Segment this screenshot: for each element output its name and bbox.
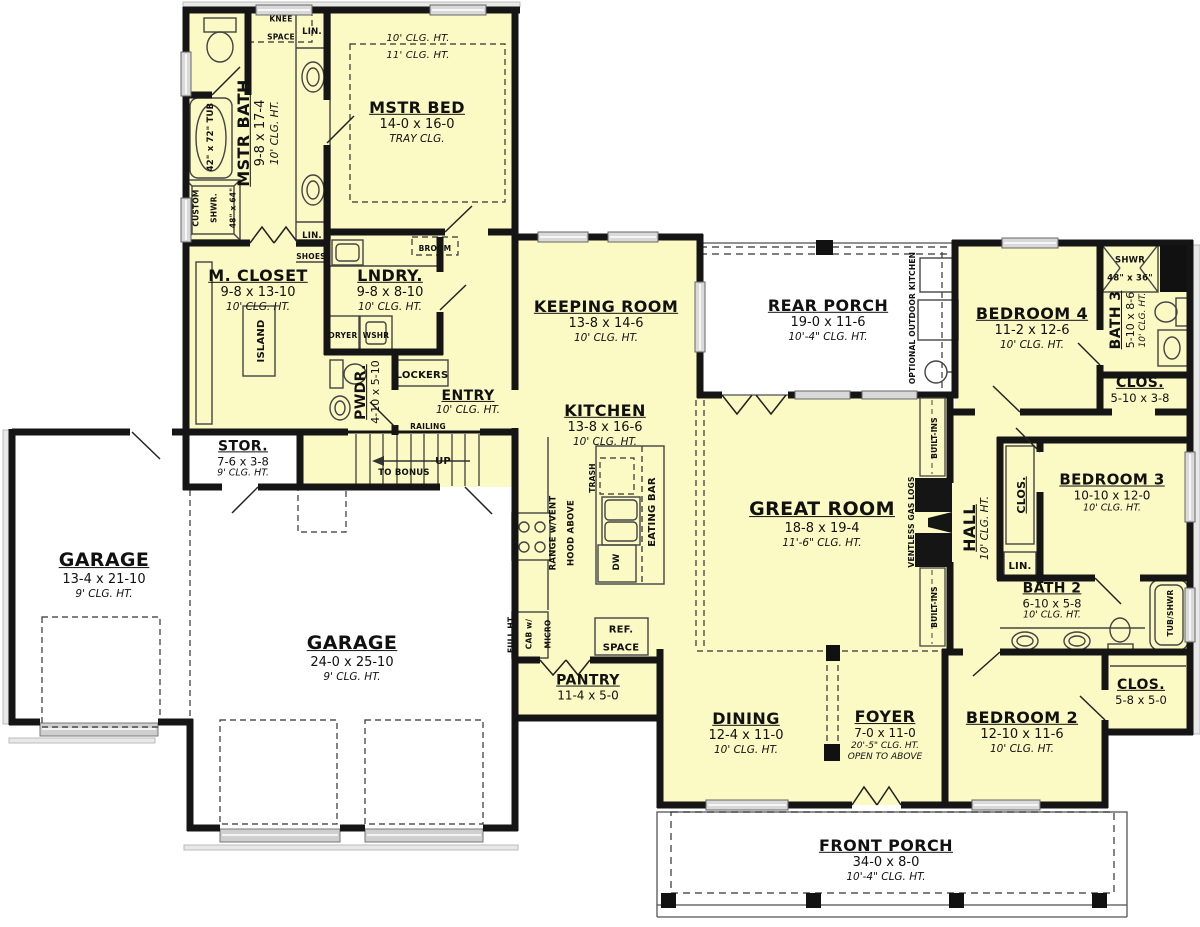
room-label-front-porch: FRONT PORCH 34-0 x 8-0 10'-4" CLG. HT. — [819, 837, 953, 883]
built-ins-label-top: BUILT-INS — [923, 417, 941, 459]
room-label-m-closet: M. CLOSET 9-8 x 13-10 10' CLG. HT. — [208, 267, 308, 313]
room-label-clos3: CLOS. 5-10 x 3-8 — [1111, 375, 1170, 405]
room-label-pwdr: PWDR. 4-10 x 5-10 — [353, 360, 383, 423]
lockers-label: LOCKERS — [396, 364, 449, 382]
washer-label: WSHR — [363, 324, 390, 342]
built-ins-label-bottom: BUILT-INS — [923, 586, 941, 628]
room-dim: 14-0 x 16-0 — [369, 118, 465, 133]
range-label: RANGE w/VENTHOOD ABOVE — [542, 496, 579, 571]
room-label-clos2: CLOS. 5-8 x 5-0 — [1115, 677, 1167, 707]
room-label-keeping: KEEPING ROOM 13-8 x 14-6 10' CLG. HT. — [534, 298, 678, 344]
room-label-bath2: BATH 2 6-10 x 5-8 10' CLG. HT. — [1023, 580, 1082, 621]
eating-bar-label: EATING BAR — [641, 477, 659, 546]
garage-door-lines — [42, 729, 481, 835]
optional-outdoor-kitchen-label: OPTIONAL OUTDOOR KITCHEN — [901, 252, 919, 384]
linen-label-bath-top: LIN. — [302, 20, 322, 38]
room-label-foyer: FOYER 7-0 x 11-0 20'-5" CLG. HT. OPEN TO… — [848, 708, 923, 762]
island-label: ISLAND — [250, 320, 268, 363]
room-label-lndry: LNDRY. 9-8 x 8-10 10' CLG. HT. — [357, 267, 424, 313]
dryer-label: DRYER — [329, 324, 358, 342]
room-label-bath3: BATH 3 5-10 x 8-6 10' CLG. HT. — [1108, 291, 1148, 350]
ventless-gas-logs-label: VENTLESS GAS LOGS — [900, 476, 918, 567]
room-fills — [186, 10, 1190, 805]
floor-plan: MSTR BED 14-0 x 16-0 TRAY CLG. 10' CLG. … — [0, 0, 1200, 927]
room-label-garage1: GARAGE 13-4 x 21-10 9' CLG. HT. — [59, 550, 150, 600]
room-label-garage2: GARAGE 24-0 x 25-10 9' CLG. HT. — [307, 633, 398, 683]
railing-label: RAILING — [410, 415, 446, 433]
room-label-mstr-bed: MSTR BED 14-0 x 16-0 TRAY CLG. — [369, 99, 465, 145]
room-name: MSTR BED — [369, 99, 465, 117]
floor-plan-drawing — [0, 0, 1200, 927]
custom-shower-label: CUSTOMSHWR.48" x 64" — [184, 188, 239, 229]
shower-48x36-label: SHWR48" x 36" — [1107, 249, 1153, 286]
room-label-great-room: GREAT ROOM 18-8 x 19-4 11'-6" CLG. HT. — [749, 499, 895, 549]
tub-shower-label: TUB/SHWR — [1159, 590, 1177, 637]
room-label-mstr-bath: MSTR BATH 9-8 x 17-4 10' CLG. HT. — [235, 79, 281, 187]
up-label: UP — [435, 450, 451, 468]
room-label-bedroom4: BEDROOM 4 11-2 x 12-6 10' CLG. HT. — [976, 305, 1088, 351]
room-label-pantry: PANTRY 11-4 x 5-0 — [556, 673, 620, 704]
room-label-bedroom2: BEDROOM 2 12-10 x 11-6 10' CLG. HT. — [966, 709, 1078, 755]
room-label-hall: HALL 10' CLG. HT. — [961, 496, 991, 560]
to-bonus-label: TO BONUS — [378, 461, 429, 479]
room-label-dining: DINING 12-4 x 11-0 10' CLG. HT. — [709, 710, 784, 756]
trash-label: TRASH — [581, 463, 599, 492]
broom-label: BROOM — [419, 237, 452, 255]
dishwasher-label: DW — [605, 554, 623, 571]
room-note: TRAY CLG. — [369, 133, 465, 145]
room-label-stor: STOR. 7-6 x 3-8 9' CLG. HT. — [217, 438, 269, 479]
shoes-label: SHOES — [296, 245, 326, 263]
full-height-cab-label: FULL HT.CAB w/MICRO — [499, 615, 554, 653]
tub-size-label: 42" x 72" TUB — [199, 103, 217, 172]
room-label-entry: ENTRY 10' CLG. HT. — [436, 388, 500, 416]
ceiling-note-10: 10' CLG. HT. — [386, 27, 449, 45]
ceiling-note-11: 11' CLG. HT. — [386, 44, 449, 62]
room-label-rear-porch: REAR PORCH 19-0 x 11-6 10'-4" CLG. HT. — [768, 297, 888, 343]
room-label-kitchen: KITCHEN 13-8 x 16-6 10' CLG. HT. — [564, 402, 646, 448]
hall-closet-label: CLOS. — [1011, 476, 1029, 513]
linen-label-bath-bottom: LIN. — [302, 224, 322, 242]
ref-space-label: REF.SPACE — [603, 619, 640, 656]
room-label-bedroom3: BEDROOM 3 10-10 x 12-0 10' CLG. HT. — [1059, 472, 1164, 515]
hall-linen-label: LIN. — [1008, 555, 1031, 573]
knee-space-label: KNEESPACE — [267, 8, 295, 45]
